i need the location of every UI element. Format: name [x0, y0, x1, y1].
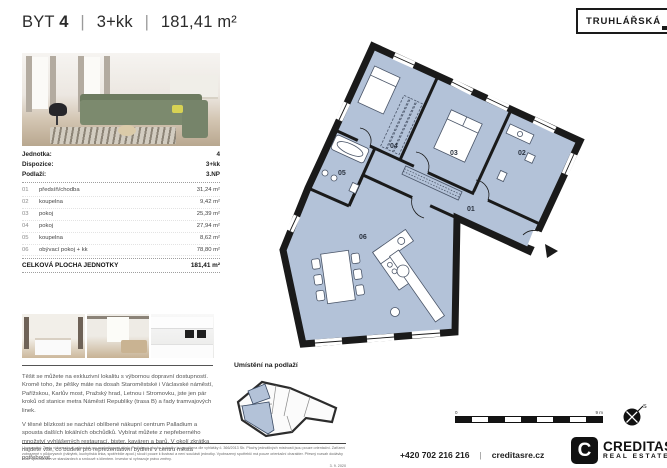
info-label: Dispozice: — [22, 160, 54, 170]
table-row: 04 pokoj 27,94 m² — [22, 221, 220, 233]
total-value: 181,41 m² — [191, 262, 220, 269]
contact-separator: | — [480, 450, 482, 460]
pillow-shape — [172, 105, 183, 113]
info-label: Jednotka: — [22, 150, 52, 160]
contact-bar: +420 702 216 216 | creditasre.cz — [400, 450, 544, 460]
room-label-06: 06 — [359, 234, 367, 241]
website: creditasre.cz — [492, 450, 545, 460]
sofa-shape — [182, 100, 208, 138]
brand-name: CREDITAS — [603, 440, 667, 454]
bed-shape — [35, 338, 71, 355]
room-name: předsíň/chodba — [39, 186, 197, 195]
table-row: 05 koupelna 8,62 m² — [22, 233, 220, 245]
creditas-logo: C CREDITAS REAL ESTATE — [571, 437, 667, 464]
location-mini-plan — [232, 374, 344, 440]
scale-bar: 0 9 m — [455, 410, 603, 423]
title-separator: | — [73, 13, 92, 31]
scale-track — [455, 416, 603, 423]
table-row: 01 předsíň/chodba 31,24 m² — [22, 185, 220, 197]
project-badge-label: TRUHLÁŘSKÁ — [586, 16, 661, 27]
unit-number: 4 — [59, 13, 68, 31]
oven-shape — [197, 330, 206, 338]
room-number: 06 — [22, 246, 39, 255]
curtain-shape — [78, 317, 83, 349]
room-area: 78,80 m² — [197, 246, 220, 255]
room-area: 9,42 m² — [200, 198, 220, 207]
brand-subtitle: REAL ESTATE — [603, 454, 667, 461]
armchair-shape — [49, 103, 67, 116]
living-room-photo — [22, 53, 220, 146]
compass-north-label: S — [643, 404, 647, 410]
room-number: 02 — [22, 198, 39, 207]
room-label-04: 04 — [390, 143, 398, 150]
coffee-table-shape — [118, 125, 136, 136]
legal-disclaimer: Upozornění: Tento výkres slouží výhradně… — [22, 443, 346, 468]
table-row: 06 obývací pokoj + kk 78,80 m² — [22, 245, 220, 257]
room-number: 01 — [22, 186, 39, 195]
kitchen-photo — [151, 314, 214, 358]
brochure-page: BYT 4 | 3+kk | 181,41 m² TRUHLÁŘSKÁ Jedn… — [0, 0, 667, 468]
room-area: 25,39 m² — [197, 210, 220, 219]
room-name: obývací pokoj + kk — [39, 246, 197, 255]
cabinet-shape — [151, 317, 213, 329]
info-value: 3+kk — [206, 160, 220, 170]
info-value: 3.NP — [206, 170, 220, 180]
creditas-logo-icon: C — [571, 437, 598, 464]
total-area: 181,41 m² — [161, 13, 237, 31]
page-title: BYT 4 | 3+kk | 181,41 m² — [22, 13, 237, 32]
total-area-row: CELKOVÁ PLOCHA JEDNOTKY 181,41 m² — [22, 258, 220, 273]
oven-shape — [185, 330, 194, 338]
room-area: 8,62 m² — [200, 234, 220, 243]
info-label: Podlaží: — [22, 170, 46, 180]
disclaimer-date: 3. 9. 2020 — [22, 464, 346, 468]
scale-start-label: 0 — [455, 410, 458, 415]
room-name: pokoj — [39, 222, 197, 231]
room-area: 31,24 m² — [197, 186, 220, 195]
room-area: 27,94 m² — [197, 222, 220, 231]
unit-info-table: Jednotka: 4 Dispozice: 3+kk Podlaží: 3.N… — [22, 150, 220, 273]
info-row: Dispozice: 3+kk — [22, 160, 220, 170]
living-room-photo-2 — [87, 314, 150, 358]
title-prefix: BYT — [22, 13, 54, 31]
curtain-shape — [24, 317, 29, 349]
room-name: koupelna — [39, 198, 200, 207]
room-name: pokoj — [39, 210, 197, 219]
room-label-05: 05 — [338, 170, 346, 177]
floor-plan: 04 03 02 01 05 06 — [262, 28, 667, 366]
table-row: 02 koupelna 9,42 m² — [22, 197, 220, 209]
info-row: Jednotka: 4 — [22, 150, 220, 160]
table-row: 03 pokoj 25,39 m² — [22, 209, 220, 221]
location-plan-title: Umístění na podlaží — [234, 362, 298, 369]
divider — [22, 365, 213, 366]
rug-shape — [50, 127, 176, 144]
room-label-01: 01 — [467, 206, 475, 213]
stool — [391, 308, 400, 317]
window-shape — [32, 57, 48, 109]
armchair-shape — [56, 116, 58, 125]
scale-end-label: 9 m — [595, 410, 603, 415]
phone-number: +420 702 216 216 — [400, 450, 470, 460]
room-label-02: 02 — [518, 150, 526, 157]
rooms-list: 01 předsíň/chodba 31,24 m² 02 koupelna 9… — [22, 182, 220, 256]
info-row: Podlaží: 3.NP — [22, 170, 220, 180]
disclaimer-text: Upozornění: Tento výkres slouží výhradně… — [22, 446, 346, 463]
info-value: 4 — [216, 150, 220, 160]
photo-strip — [22, 314, 214, 358]
room-number: 04 — [22, 222, 39, 231]
compass-icon: S — [620, 400, 650, 430]
counter-shape — [151, 344, 213, 358]
room-number: 03 — [22, 210, 39, 219]
title-separator: | — [138, 13, 157, 31]
entrance-arrow-icon — [545, 244, 558, 258]
room-number: 05 — [22, 234, 39, 243]
description-paragraph-1: Těšit se můžete na exkluzivní lokalitu s… — [22, 373, 219, 415]
round-table — [397, 265, 409, 277]
window-shape — [107, 317, 129, 342]
room-name: koupelna — [39, 234, 200, 243]
curtain-shape — [26, 56, 32, 112]
room-label-03: 03 — [450, 150, 458, 157]
bedroom-photo — [22, 314, 85, 358]
total-label: CELKOVÁ PLOCHA JEDNOTKY — [22, 262, 118, 269]
sofa-shape — [121, 340, 147, 353]
disposition: 3+kk — [97, 13, 133, 31]
